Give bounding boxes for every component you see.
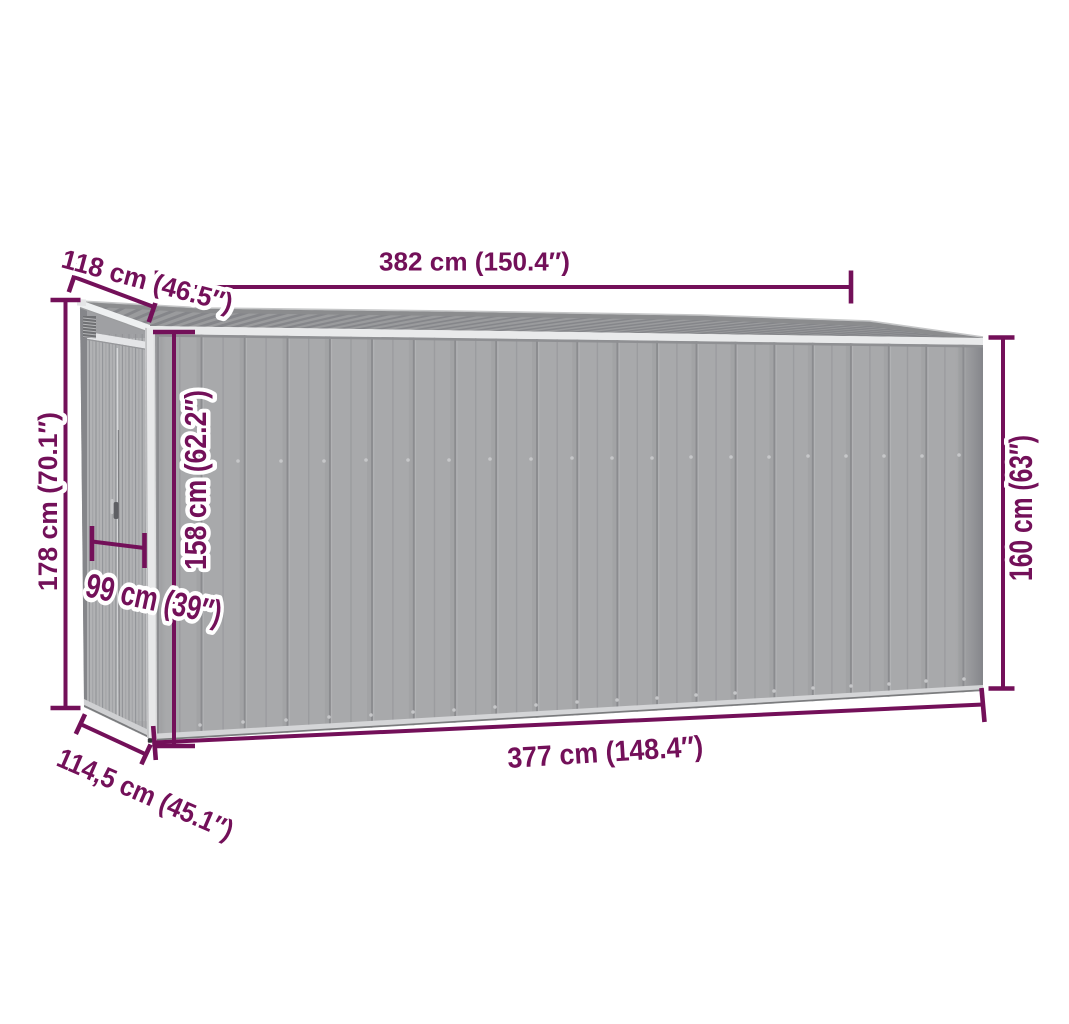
svg-text:158 cm (62.2″): 158 cm (62.2″) — [178, 390, 213, 570]
svg-text:178 cm (70.1″): 178 cm (70.1″) — [33, 412, 63, 591]
svg-text:382 cm (150.4″): 382 cm (150.4″) — [379, 247, 570, 277]
svg-text:160 cm (63″): 160 cm (63″) — [1003, 435, 1039, 581]
